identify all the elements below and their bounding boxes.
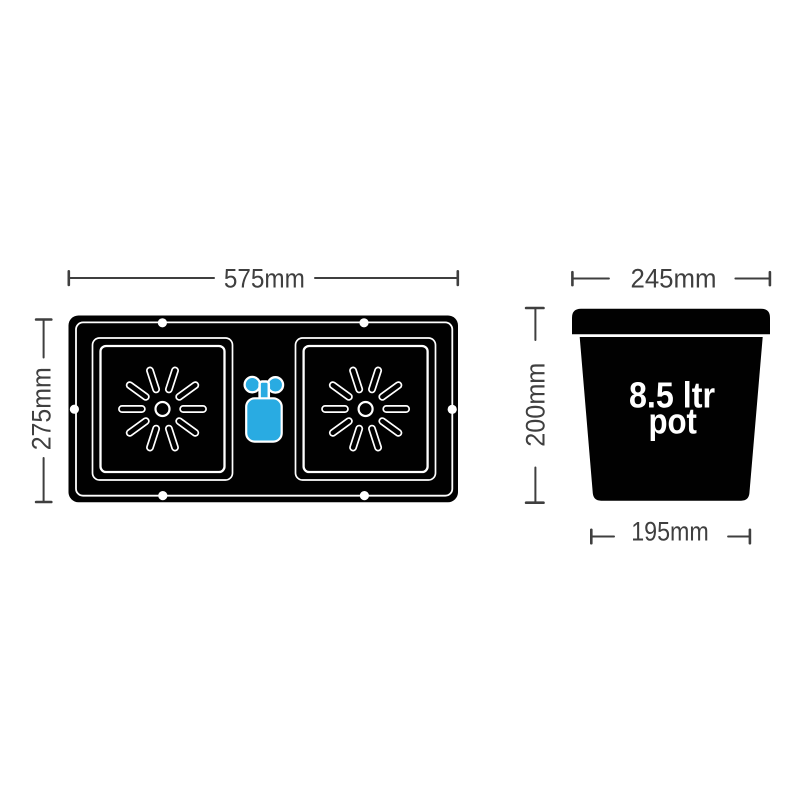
svg-text:200mm: 200mm (520, 363, 550, 447)
svg-text:575mm: 575mm (224, 263, 305, 293)
svg-text:275mm: 275mm (27, 367, 57, 450)
svg-text:245mm: 245mm (631, 263, 717, 293)
svg-text:pot: pot (648, 401, 697, 442)
svg-text:195mm: 195mm (631, 517, 709, 547)
